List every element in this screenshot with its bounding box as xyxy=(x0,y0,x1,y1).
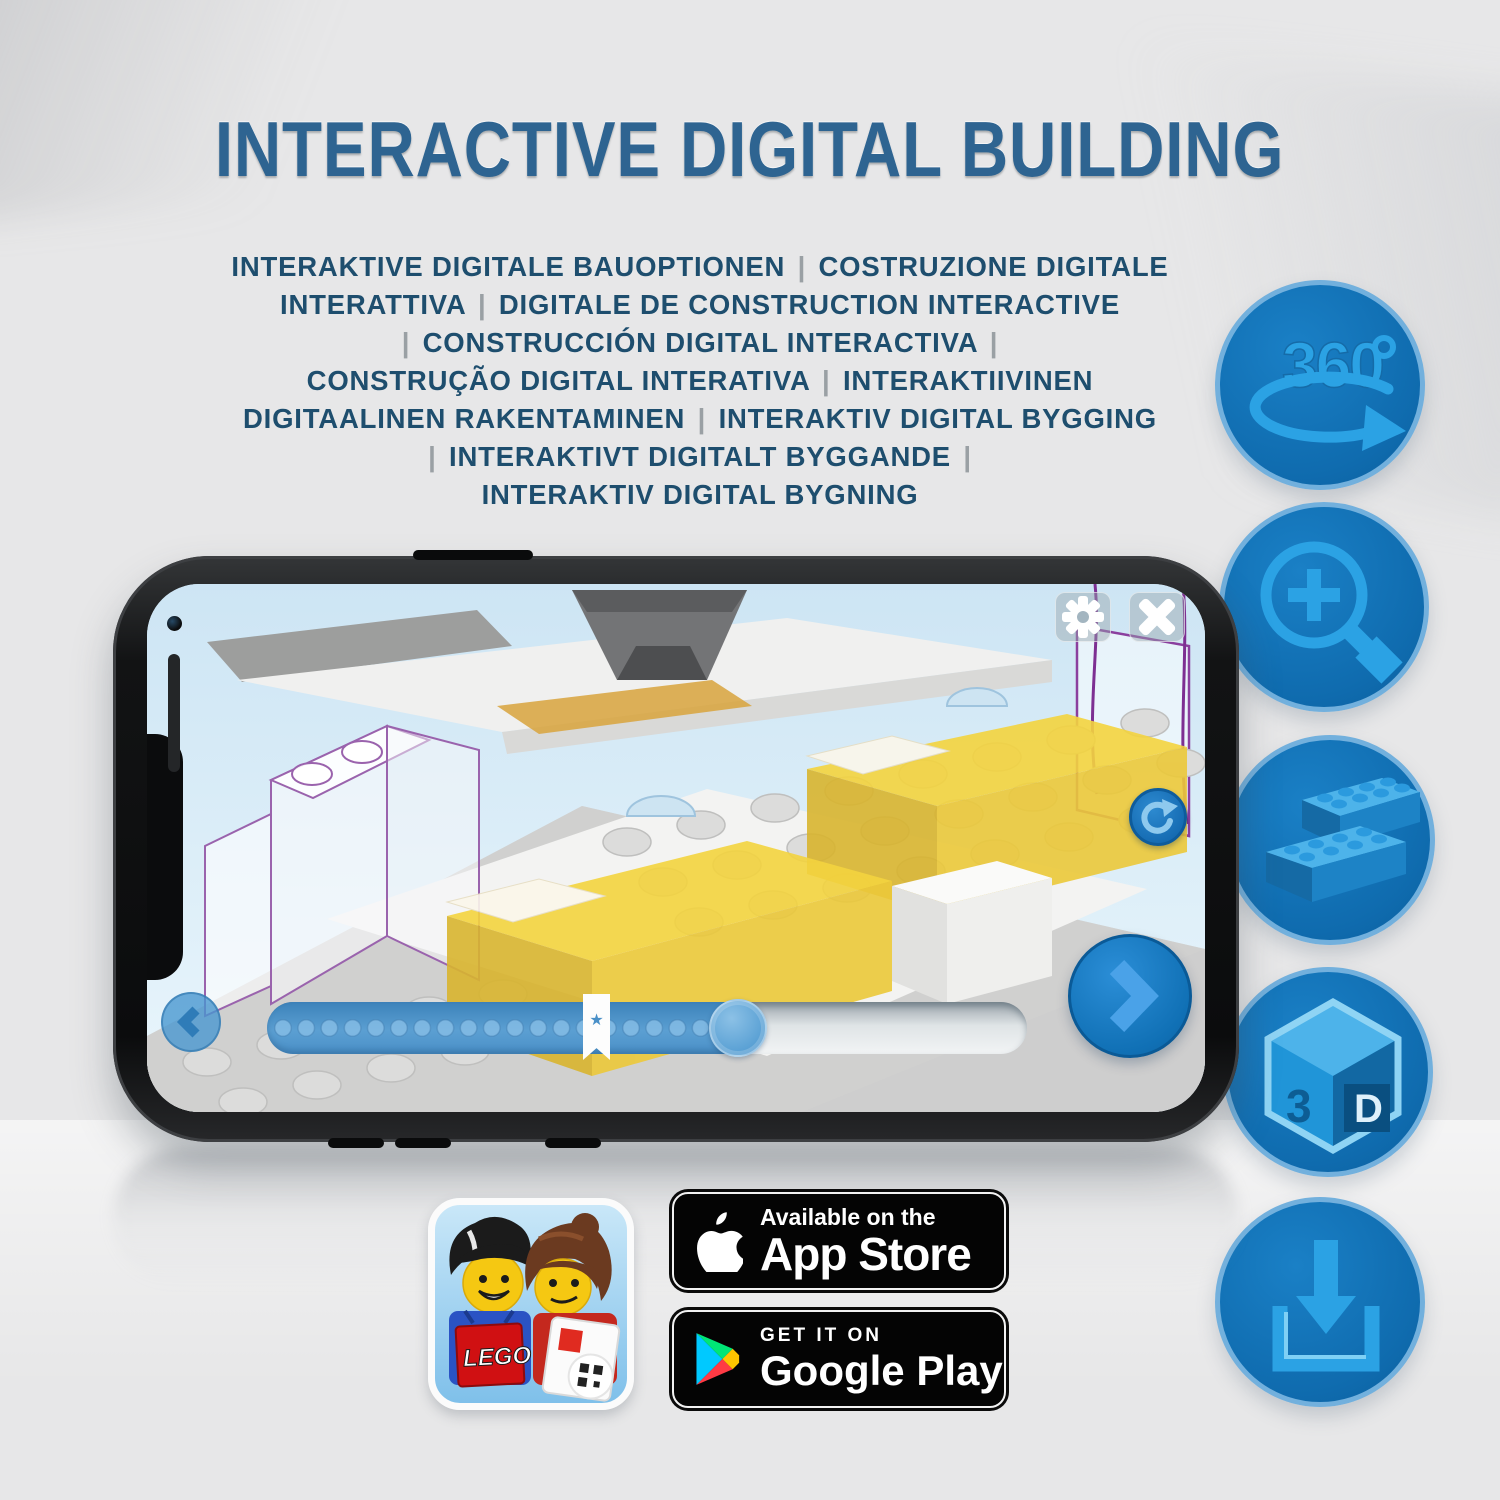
front-camera xyxy=(167,616,182,631)
progress-step-dots xyxy=(267,1002,763,1054)
lower-brick xyxy=(1266,826,1406,902)
lego-app-icon[interactable]: LEGO xyxy=(428,1198,634,1410)
apple-icon xyxy=(674,1210,760,1272)
chevron-left-icon xyxy=(163,994,219,1050)
rotate-360-icon: 360 xyxy=(1220,285,1430,495)
degree-symbol xyxy=(1375,338,1393,356)
magnifier-plus-icon xyxy=(1224,507,1434,717)
google-play-tagline: GET IT ON xyxy=(760,1324,1003,1348)
google-play-name: Google Play xyxy=(760,1348,1003,1394)
next-step-button[interactable] xyxy=(1068,934,1192,1058)
close-button[interactable] xyxy=(1129,592,1185,642)
build-progress-bar[interactable]: ★ xyxy=(267,1002,1027,1054)
app-store-name: App Store xyxy=(760,1230,971,1278)
subtitle-line: INTERAKTIV DIGITAL BYGNING xyxy=(150,476,1250,514)
gear-icon xyxy=(1056,593,1110,641)
feature-download-icon xyxy=(1215,1197,1425,1407)
star-icon: ★ xyxy=(583,1010,610,1030)
lego-minifigures-art: LEGO xyxy=(435,1205,627,1403)
app-store-badge[interactable]: Available on the App Store xyxy=(672,1192,1006,1290)
rotate-view-button[interactable] xyxy=(1129,788,1187,846)
phone-notch xyxy=(147,734,183,980)
lego-bricks-icon xyxy=(1230,740,1440,950)
chevron-right-icon xyxy=(1071,937,1189,1055)
phone-volume-button xyxy=(395,1138,451,1148)
feature-brick-icon xyxy=(1225,735,1435,945)
rotation-arrowhead xyxy=(1362,405,1406,451)
multilingual-subtitle: INTERAKTIVE DIGITALE BAUOPTIONEN | COSTR… xyxy=(150,248,1250,514)
feature-3d-icon: 3 D xyxy=(1223,967,1433,1177)
360-label: 360 xyxy=(1282,329,1383,401)
close-icon xyxy=(1130,593,1184,641)
app-store-tagline: Available on the xyxy=(760,1204,971,1230)
lego-logo-text: LEGO xyxy=(462,1342,532,1373)
earpiece-speaker xyxy=(168,654,180,772)
phone-power-button xyxy=(545,1138,601,1148)
lego-logo-tile: LEGO xyxy=(455,1323,532,1387)
3d-right-letter: D xyxy=(1354,1087,1383,1131)
subtitle-line: CONSTRUÇÃO DIGITAL INTERATIVA | INTERAKT… xyxy=(150,362,1250,400)
subtitle-line: INTERATTIVA | DIGITALE DE CONSTRUCTION I… xyxy=(150,286,1250,324)
instruction-booklet xyxy=(542,1317,620,1402)
3d-left-letter: 3 xyxy=(1286,1080,1312,1132)
page-title: INTERACTIVE DIGITAL BUILDING xyxy=(0,104,1500,195)
google-play-badge[interactable]: GET IT ON Google Play xyxy=(672,1310,1006,1408)
feature-360-rotation-icon: 360 xyxy=(1215,280,1425,490)
settings-button[interactable] xyxy=(1055,592,1111,642)
3d-cube-icon: 3 D xyxy=(1228,972,1438,1182)
previous-step-button[interactable] xyxy=(161,992,221,1052)
feature-zoom-icon xyxy=(1219,502,1429,712)
phone-volume-button xyxy=(328,1138,384,1148)
progress-thumb[interactable] xyxy=(709,999,767,1057)
google-play-icon xyxy=(674,1329,760,1389)
app-screen: ★ xyxy=(147,584,1205,1112)
subtitle-line: | CONSTRUCCIÓN DIGITAL INTERACTIVA | xyxy=(150,324,1250,362)
progress-fill xyxy=(267,1002,763,1054)
smartphone: ★ xyxy=(113,556,1239,1142)
page: INTERACTIVE DIGITAL BUILDING INTERAKTIVE… xyxy=(0,0,1500,1500)
download-icon xyxy=(1220,1202,1430,1412)
phone-top-button xyxy=(413,550,533,560)
subtitle-line: INTERAKTIVE DIGITALE BAUOPTIONEN | COSTR… xyxy=(150,248,1250,286)
rotate-icon xyxy=(1132,791,1184,843)
subtitle-line: DIGITAALINEN RAKENTAMINEN | INTERAKTIV D… xyxy=(150,400,1250,438)
subtitle-line: | INTERAKTIVT DIGITALT BYGGANDE | xyxy=(150,438,1250,476)
